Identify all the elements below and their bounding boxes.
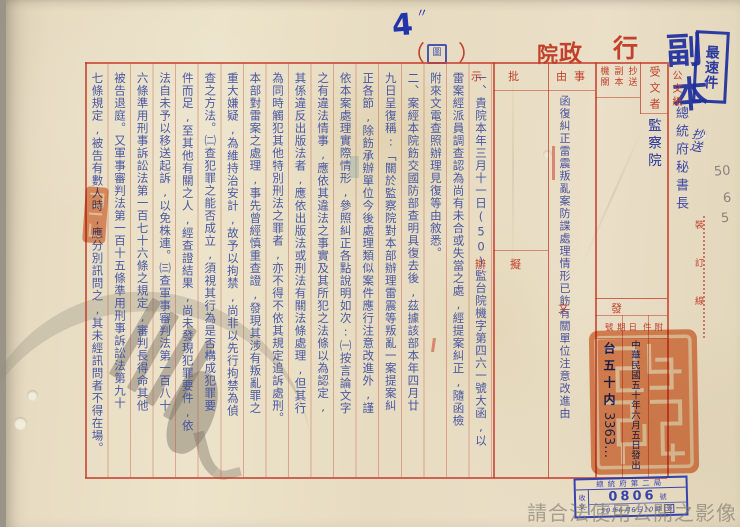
cc-box-label-agency: 機關 (598, 66, 611, 96)
body-text: 一、貴院本年三月十一日(50)監台院機字第四六一號大函,以 雷案經派員調查認為尚… (86, 63, 492, 477)
body-column: 依本案處理實際情形,參照糾正各點說明如次:㈠按言論文字 (334, 63, 357, 477)
body-column: 其係違反出版法者,應依出版法或刑法有關法條處理,但其行 (289, 63, 312, 477)
recipient-value: 監察院 (643, 118, 663, 171)
paper-type-label: 公文紙 (668, 70, 683, 109)
body-column: 七條規定,被告有數人時,應分別訊問之,其未經訊問者不得在場。 (86, 63, 109, 477)
binding-line-label: 裝訂線 (692, 220, 705, 338)
dispatch-section-label: 發文 (600, 300, 664, 316)
cc-box-label-duplicate: 副本 (612, 66, 625, 96)
body-column: 件而足,至其他有關之人,經查證結果,尚未發現犯罪要件,依 (176, 63, 199, 477)
subject-text: 函復糾正雷震叛亂案防諜處理情形已飭有關單位注意改進由 (556, 95, 572, 440)
paper-crease (512, 62, 514, 272)
punch-hole (14, 417, 27, 430)
teal-smudge (350, 156, 359, 178)
body-column: 九日呈復稱:「關於監察院對本部辦理雷震等叛亂一案提案糾 (379, 63, 402, 477)
handwritten-tick-mark: 〃 (416, 4, 428, 21)
priority-stamp-text: 最速件 (700, 44, 722, 90)
usage-watermark-text: 請合法使用公開之影像 (527, 497, 737, 526)
body-column: 查之方法。㈡查犯罪之能否成立,須視其行為是否構成犯罪要 (199, 63, 222, 477)
body-column: 正各節,除飭承辦單位今後處理類似案件應行注意改進外,謹 (357, 63, 380, 477)
priority-stamp: 最速件 (692, 30, 730, 104)
pencil-note-2: 6 (722, 191, 731, 207)
subject-label: 事由 (560, 68, 592, 84)
pencil-note-3: 5 (720, 211, 729, 227)
punch-hole (27, 390, 38, 401)
body-column: 附來文電查照辦理見復等由敘悉。 (424, 63, 447, 477)
cc-box-label-copy-to: 抄送 (626, 66, 639, 96)
body-column: 之有違法情事,應依其違法之事實及其所犯之法條以為認定, (312, 63, 335, 477)
body-column: 雷案經派員調查認為尚有未合或失當之處,經提案糾正,隨函檢 (447, 63, 470, 477)
scanned-document: 4 〃 （ ） 圖 行 政 院 副 本 最速件 公文紙 總統府秘書長 抄送 裝訂… (0, 0, 740, 527)
classification-stamp: 圖 (427, 44, 447, 64)
recipient-label: 受文者 (646, 66, 662, 114)
pencil-note-1: 50 (713, 163, 731, 179)
body-column: 重大嫌疑,為維持治安計,故予以拘禁,尚非以先行拘禁為偵 (221, 63, 244, 477)
executive-yuan-seal (587, 327, 702, 477)
body-column: 一、貴院本年三月十一日(50)監台院機字第四六一號大函,以 (469, 63, 492, 477)
body-column: 被告退庭。又軍事審判法第一百十五條準用刑事訴訟法第九十 (108, 63, 131, 477)
body-column: 為同時觸犯其他特別刑法之罪者,亦不得不依其規定追訴處刑。 (266, 63, 289, 477)
body-column: 本部對雷案之處理,事先曾經慎重查證,發現其涉有叛亂罪之 (244, 63, 267, 477)
red-emphasis-mark (552, 146, 555, 180)
approval-label: 批示 (497, 68, 545, 84)
cc-box: 抄送 副本 機關 (597, 66, 639, 96)
draft-label: 擬辦 (497, 256, 545, 272)
header-title-char-1: 行 (613, 29, 638, 65)
body-column: 法自未予以移送起訴,以免株連。㈢查軍事審判法第一百八十 (154, 63, 177, 477)
body-column: 二、案經本院飭交國防部查明具復去後,茲據該部本年四月廿 (402, 63, 425, 477)
small-seal (81, 185, 110, 245)
body-column: 六條準用刑事訴訟法第一百七十六條之規定,審判長得命其他 (131, 63, 154, 477)
